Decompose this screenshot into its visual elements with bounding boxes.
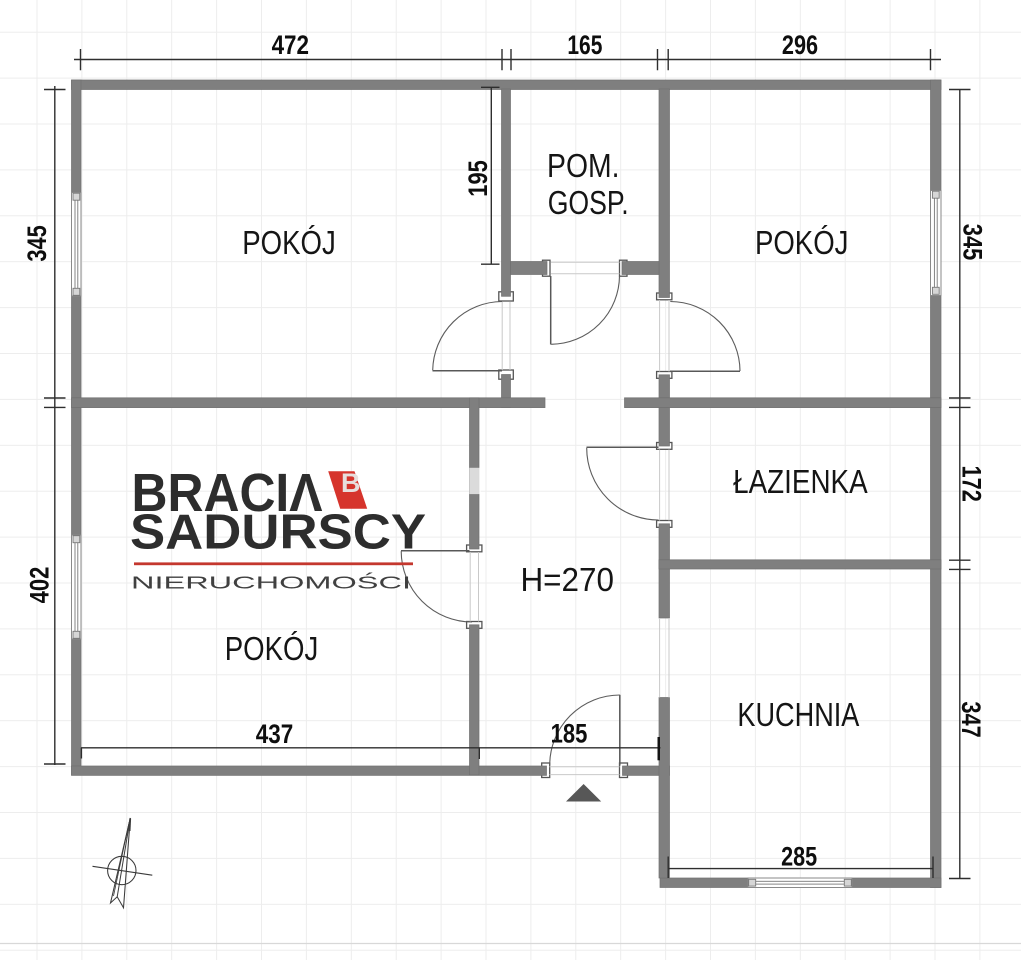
- svg-text:KUCHNIA: KUCHNIA: [737, 696, 859, 733]
- svg-text:ŁAZIENKA: ŁAZIENKA: [733, 463, 868, 500]
- svg-text:437: 437: [256, 719, 294, 749]
- svg-text:195: 195: [463, 160, 493, 196]
- svg-text:POKÓJ: POKÓJ: [755, 224, 849, 261]
- svg-text:472: 472: [272, 30, 309, 60]
- svg-text:347: 347: [956, 701, 986, 737]
- svg-text:NIERUCHOMOŚCI: NIERUCHOMOŚCI: [131, 571, 411, 592]
- svg-text:SADURSCY: SADURSCY: [130, 506, 426, 560]
- svg-text:GOSP.: GOSP.: [548, 184, 629, 221]
- svg-text:H=270: H=270: [520, 561, 614, 598]
- svg-text:POKÓJ: POKÓJ: [225, 630, 319, 667]
- svg-text:345: 345: [22, 225, 52, 261]
- svg-text:POKÓJ: POKÓJ: [242, 224, 336, 261]
- svg-text:402: 402: [25, 567, 55, 604]
- svg-text:345: 345: [958, 224, 988, 260]
- svg-text:POM.: POM.: [547, 147, 620, 184]
- svg-text:172: 172: [957, 466, 987, 502]
- svg-text:B: B: [341, 468, 361, 498]
- svg-text:285: 285: [781, 841, 817, 871]
- svg-text:185: 185: [551, 719, 588, 749]
- svg-text:296: 296: [782, 30, 818, 60]
- svg-text:165: 165: [567, 30, 602, 60]
